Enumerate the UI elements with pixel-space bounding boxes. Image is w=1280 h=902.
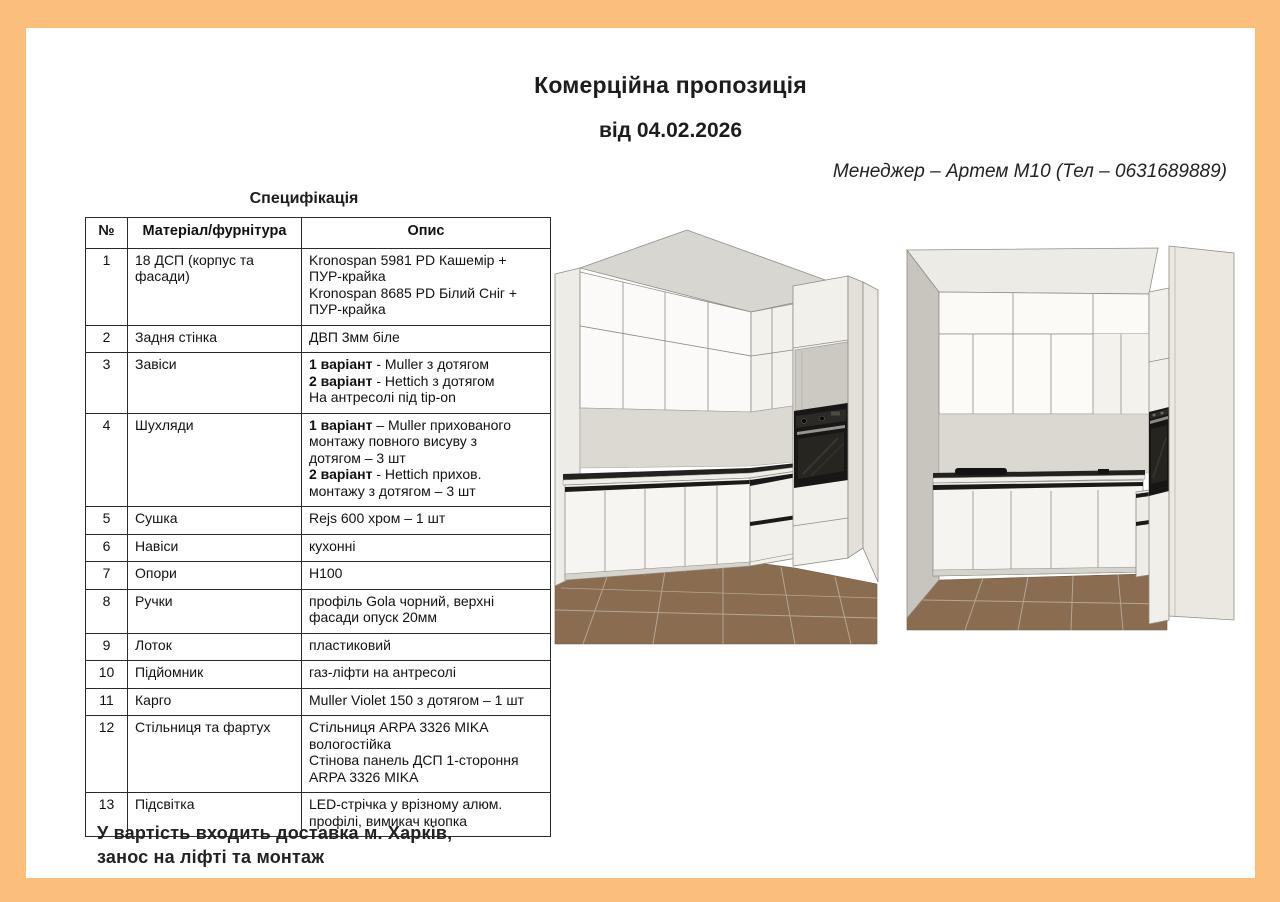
table-row: 118 ДСП (корпус та фасади)Kronospan 5981… xyxy=(86,248,551,325)
ceiling-plane xyxy=(907,248,1158,294)
date-line: від 04.02.2026 xyxy=(56,119,1280,143)
base-cabinets xyxy=(565,478,750,580)
upper-cabinets xyxy=(939,334,1149,414)
cell-material: Ручки xyxy=(128,589,302,633)
table-row: 12Стільниця та фартухСтільниця ARPA 3326… xyxy=(86,716,551,793)
table-row: 9Лотокпластиковий xyxy=(86,633,551,661)
cell-num: 4 xyxy=(86,413,128,507)
column-header-0: № xyxy=(86,218,128,249)
cell-material: Шухляди xyxy=(128,413,302,507)
spec-table: №Матеріал/фурнітураОпис 118 ДСП (корпус … xyxy=(85,217,551,837)
cell-description: ДВП 3мм біле xyxy=(302,325,551,353)
cell-num: 3 xyxy=(86,353,128,414)
cell-num: 8 xyxy=(86,589,128,633)
cell-num: 7 xyxy=(86,562,128,590)
cell-description: Muller Violet 150 з дотягом – 1 шт xyxy=(302,688,551,716)
cell-material: Навіси xyxy=(128,534,302,562)
cell-description: H100 xyxy=(302,562,551,590)
table-row: 2Задня стінкаДВП 3мм біле xyxy=(86,325,551,353)
hob xyxy=(955,468,1007,475)
column-header-1: Матеріал/фурнітура xyxy=(128,218,302,249)
cell-description: газ-ліфти на антресолі xyxy=(302,661,551,689)
cell-num: 10 xyxy=(86,661,128,689)
cell-description: кухонні xyxy=(302,534,551,562)
cell-description: Стільниця ARPA 3326 MIKAвологостійкаСтін… xyxy=(302,716,551,793)
small-appliance xyxy=(1098,469,1109,474)
table-row: 11КаргоMuller Violet 150 з дотягом – 1 ш… xyxy=(86,688,551,716)
footer-line-2: занос на ліфті та монтаж xyxy=(97,845,452,869)
base-cabinets xyxy=(933,480,1143,576)
cell-material: Задня стінка xyxy=(128,325,302,353)
cell-description: 1 варіант - Muller з дотягом2 варіант - … xyxy=(302,353,551,414)
tall-cabinet-side-panel xyxy=(848,276,863,558)
cell-material: Сушка xyxy=(128,507,302,535)
backsplash-panel xyxy=(580,406,793,468)
cell-material: Лоток xyxy=(128,633,302,661)
manager-line: Менеджер – Артем М10 (Тел – 0631689889) xyxy=(833,161,1227,183)
cell-num: 1 xyxy=(86,248,128,325)
cell-material: 18 ДСП (корпус та фасади) xyxy=(128,248,302,325)
kitchen-render-perspective-image xyxy=(545,228,881,646)
footer-line-1: У вартість входить доставка м. Харків, xyxy=(97,821,452,845)
cell-description: 1 варіант – Muller прихованогомонтажу по… xyxy=(302,413,551,507)
table-row: 6Навісикухонні xyxy=(86,534,551,562)
table-row: 4Шухляди1 варіант – Muller прихованогомо… xyxy=(86,413,551,507)
document-page: Комерційна пропозиція від 04.02.2026 Мен… xyxy=(26,28,1255,878)
floor-tiles xyxy=(907,574,1167,630)
table-row: 5СушкаRejs 600 хром – 1 шт xyxy=(86,507,551,535)
footer-note: У вартість входить доставка м. Харків, з… xyxy=(97,821,452,869)
table-header-row: №Матеріал/фурнітураОпис xyxy=(86,218,551,249)
cell-material: Підйомник xyxy=(128,661,302,689)
table-row: 8Ручкипрофіль Gola чорний, верхніфасади … xyxy=(86,589,551,633)
cell-material: Завіси xyxy=(128,353,302,414)
cell-num: 9 xyxy=(86,633,128,661)
cell-description: Rejs 600 хром – 1 шт xyxy=(302,507,551,535)
table-row: 3Завіси1 варіант - Muller з дотягом2 вар… xyxy=(86,353,551,414)
backsplash-panel xyxy=(939,414,1149,473)
kitchen-render-front xyxy=(893,228,1238,646)
cell-description: профіль Gola чорний, верхніфасади опуск … xyxy=(302,589,551,633)
end-wall-panel xyxy=(863,282,878,582)
cell-material: Карго xyxy=(128,688,302,716)
cell-num: 6 xyxy=(86,534,128,562)
table-row: 10Підйомникгаз-ліфти на антресолі xyxy=(86,661,551,689)
antresol-cabinets xyxy=(939,292,1149,334)
cell-num: 2 xyxy=(86,325,128,353)
cell-num: 11 xyxy=(86,688,128,716)
built-in-oven xyxy=(1149,407,1169,496)
kitchen-render-perspective xyxy=(545,228,881,646)
built-in-oven xyxy=(794,403,848,488)
drawer-stack xyxy=(750,471,797,566)
table-row: 7ОпориH100 xyxy=(86,562,551,590)
kitchen-render-front-image xyxy=(893,228,1238,646)
page-title: Комерційна пропозиція xyxy=(56,72,1280,99)
spec-caption: Специфікація xyxy=(85,190,523,208)
cell-num: 12 xyxy=(86,716,128,793)
cell-num: 5 xyxy=(86,507,128,535)
cell-material: Стільниця та фартух xyxy=(128,716,302,793)
upper-cabinets-right xyxy=(751,304,793,412)
cell-material: Опори xyxy=(128,562,302,590)
tall-wardrobe-panel xyxy=(1169,246,1234,620)
column-header-2: Опис xyxy=(302,218,551,249)
cell-description: пластиковий xyxy=(302,633,551,661)
cell-description: Kronospan 5981 PD Кашемір +ПУР-крайкаKro… xyxy=(302,248,551,325)
